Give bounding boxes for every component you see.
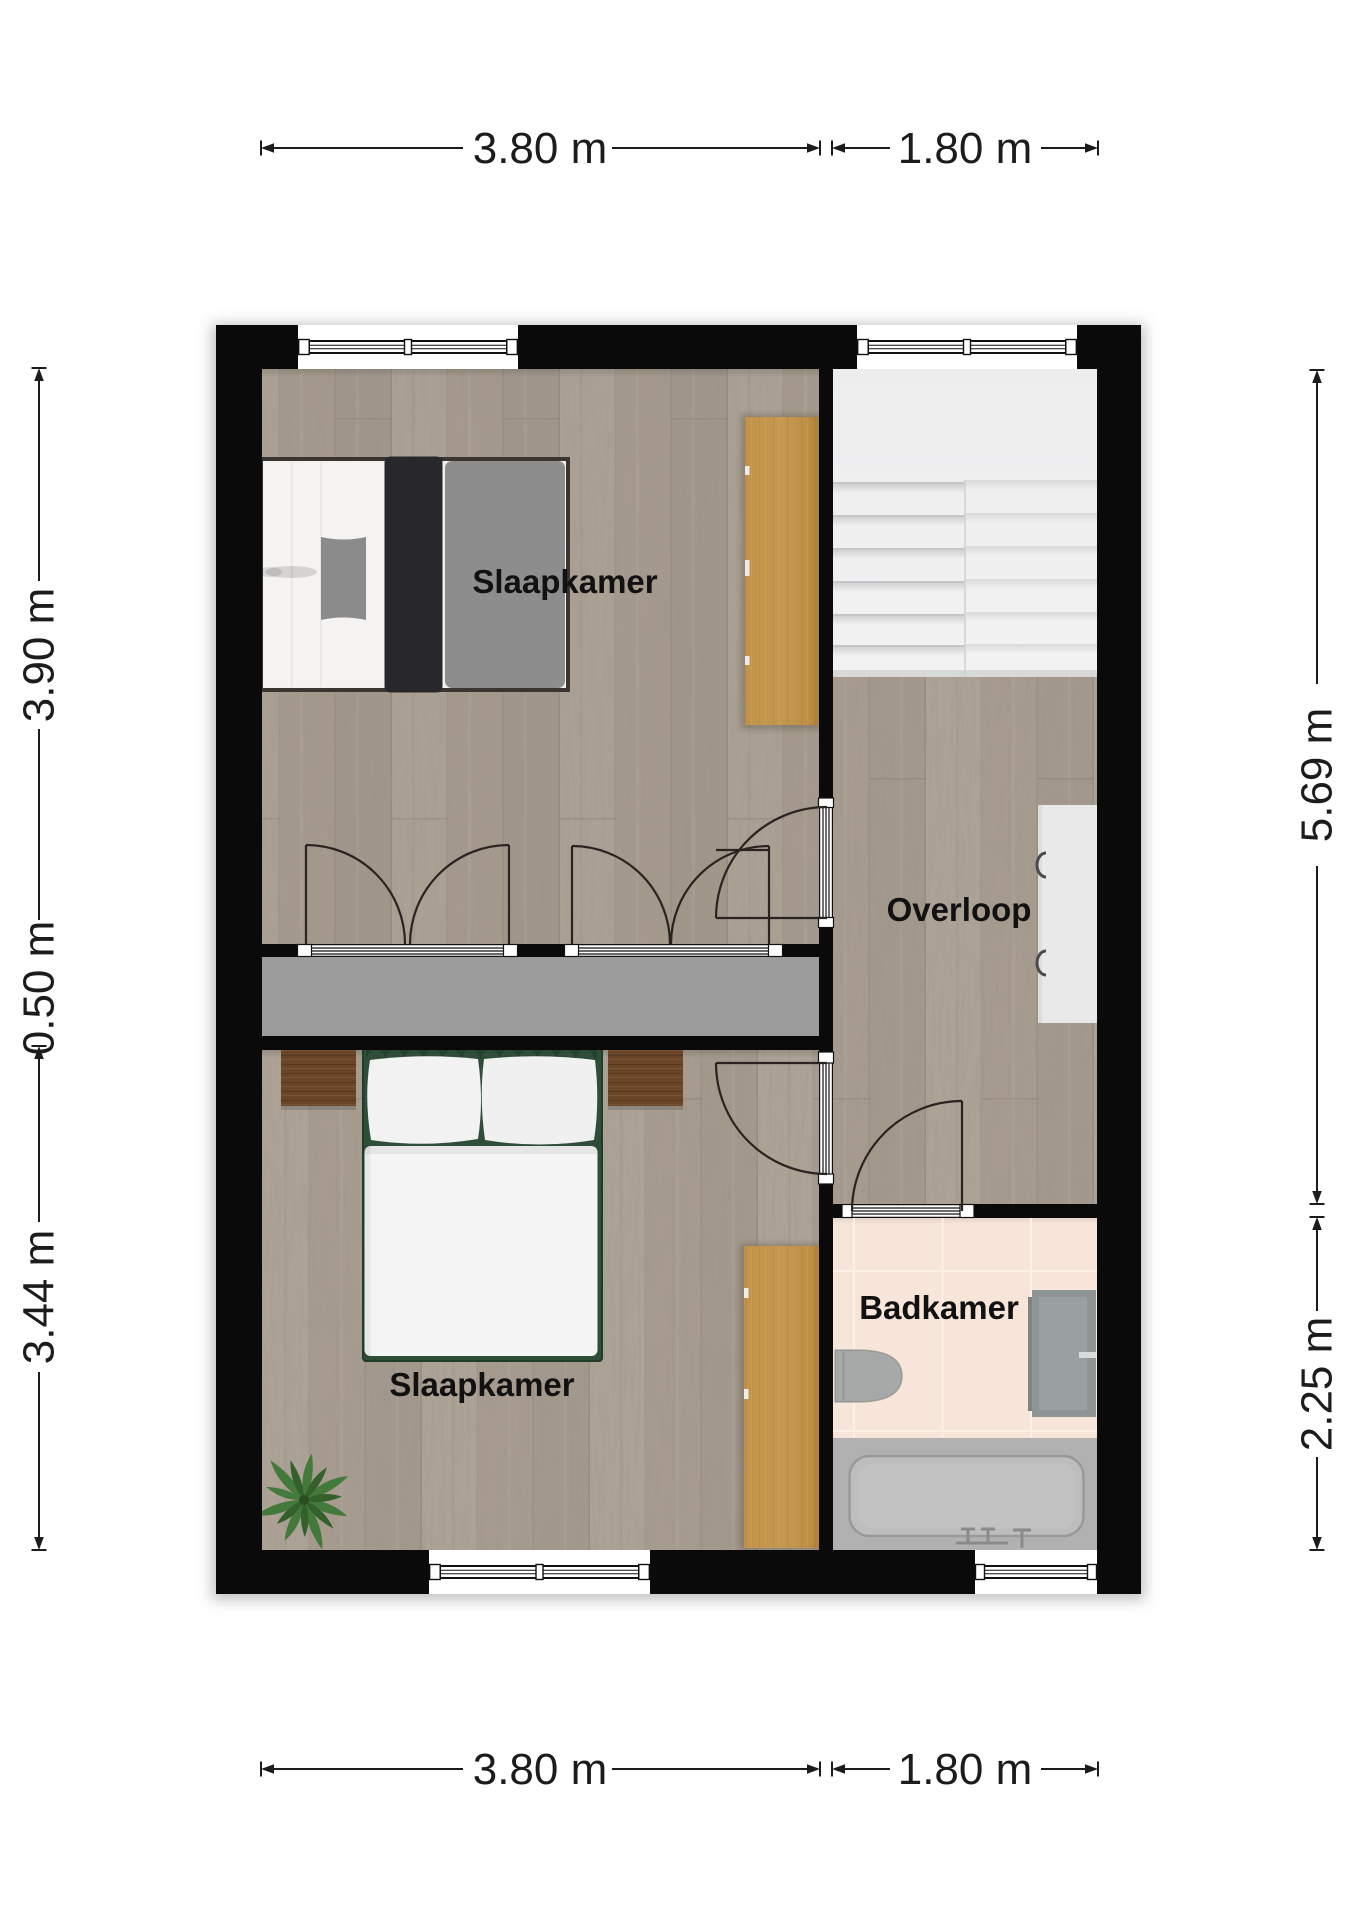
svg-text:3.80 m: 3.80 m — [473, 124, 608, 173]
svg-text:Slaapkamer: Slaapkamer — [389, 1366, 574, 1403]
svg-text:2.25 m: 2.25 m — [1293, 1317, 1342, 1452]
svg-text:Badkamer: Badkamer — [859, 1289, 1019, 1326]
svg-text:Slaapkamer: Slaapkamer — [472, 563, 657, 600]
svg-text:1.80 m: 1.80 m — [898, 1745, 1033, 1794]
svg-text:Overloop: Overloop — [887, 891, 1032, 928]
svg-text:3.44 m: 3.44 m — [15, 1230, 64, 1365]
svg-text:1.80 m: 1.80 m — [898, 124, 1033, 173]
svg-text:3.90 m: 3.90 m — [15, 588, 64, 723]
svg-text:0.50 m: 0.50 m — [15, 921, 64, 1056]
svg-text:5.69 m: 5.69 m — [1293, 708, 1342, 843]
svg-text:3.80 m: 3.80 m — [473, 1745, 608, 1794]
